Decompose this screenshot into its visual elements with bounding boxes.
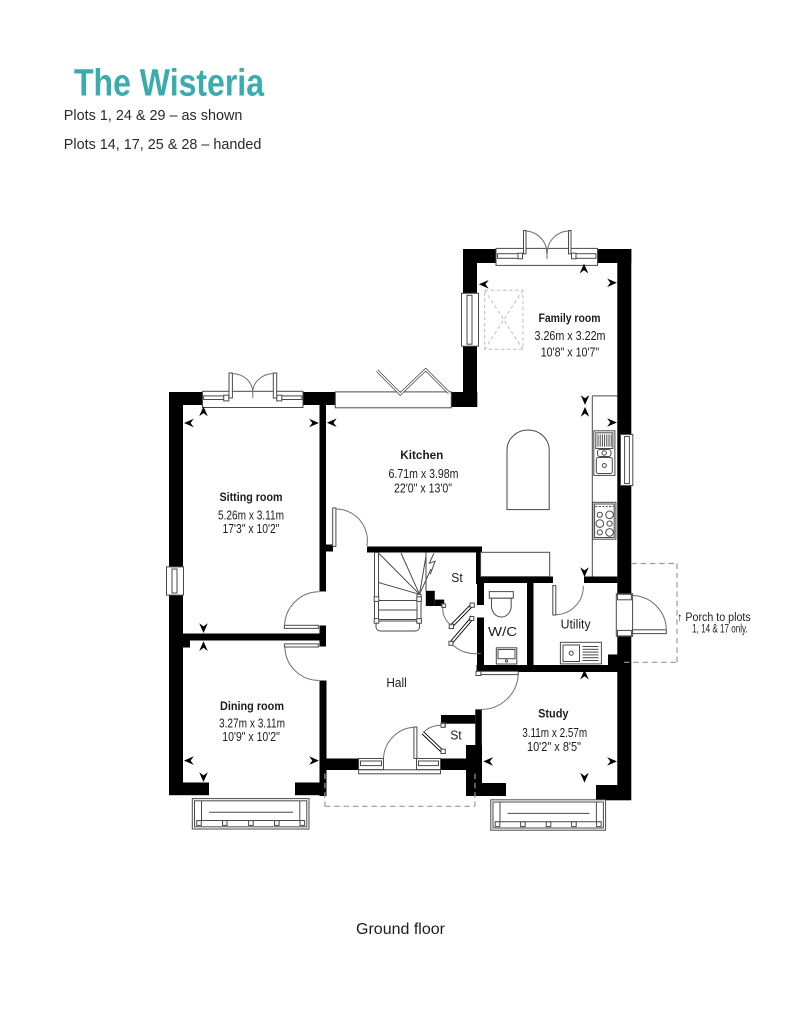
svg-text:10'8" x 10'7": 10'8" x 10'7" (541, 345, 600, 360)
svg-text:Plots 14, 17, 25 & 28 – handed: Plots 14, 17, 25 & 28 – handed (64, 137, 262, 153)
svg-text:Family room: Family room (539, 311, 601, 325)
svg-text:Plots 1, 24 & 29 – as shown: Plots 1, 24 & 29 – as shown (64, 108, 243, 124)
svg-text:Sitting room: Sitting room (220, 490, 283, 504)
svg-text:3.11m x 2.57m: 3.11m x 2.57m (522, 725, 587, 740)
svg-text:Study: Study (538, 707, 569, 721)
svg-text:17'3" x 10'2": 17'3" x 10'2" (223, 521, 280, 536)
svg-text:Hall: Hall (386, 675, 406, 690)
svg-text:22'0" x 13'0": 22'0" x 13'0" (394, 481, 452, 496)
svg-text:St: St (451, 571, 463, 585)
svg-text:10'9" x 10'2": 10'9" x 10'2" (222, 729, 280, 744)
svg-text:Dining room: Dining room (220, 699, 284, 713)
svg-text:St: St (450, 729, 462, 743)
svg-text:The Wisteria: The Wisteria (74, 63, 265, 105)
svg-text:Ground floor: Ground floor (356, 921, 446, 938)
svg-text:1, 14 & 17 only.: 1, 14 & 17 only. (692, 624, 748, 636)
svg-text:Kitchen: Kitchen (400, 448, 443, 462)
svg-text:6.71m x 3.98m: 6.71m x 3.98m (389, 466, 459, 481)
svg-text:W/C: W/C (488, 624, 517, 639)
svg-text:Utility: Utility (561, 616, 591, 631)
svg-text:10'2" x 8'5": 10'2" x 8'5" (527, 739, 581, 754)
svg-text:3.26m x 3.22m: 3.26m x 3.22m (535, 328, 606, 343)
svg-text:↑ Porch to plots: ↑ Porch to plots (677, 612, 751, 624)
